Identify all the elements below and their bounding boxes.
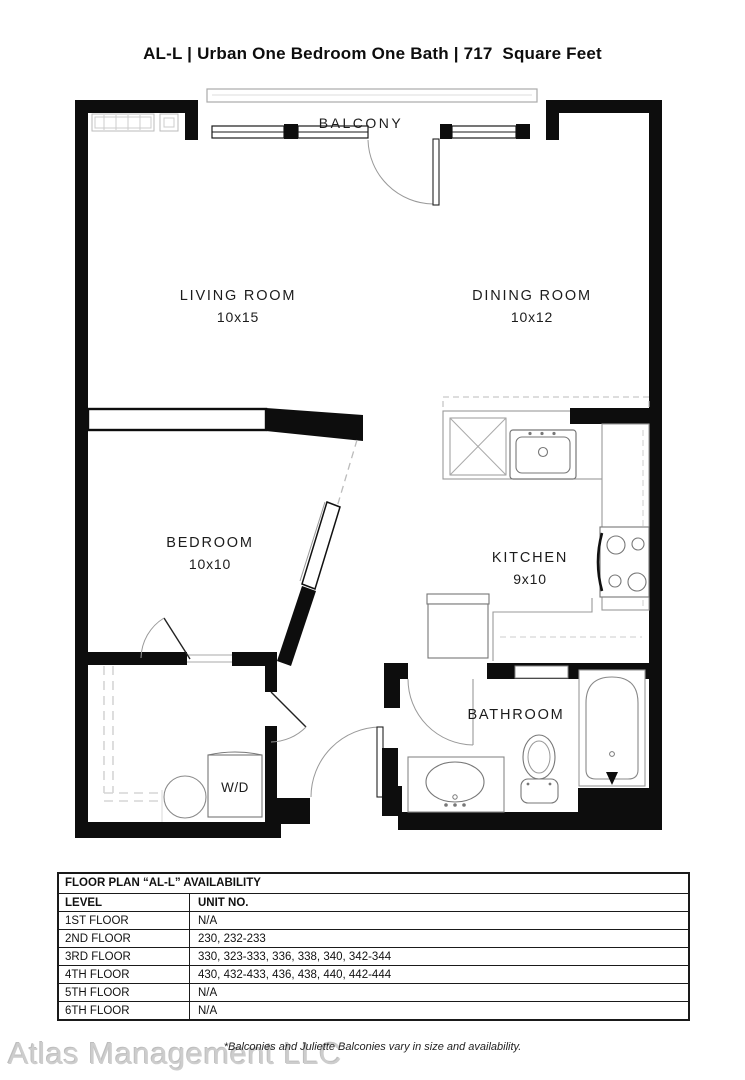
page: AL-L | Urban One Bedroom One Bath | 717 … <box>0 0 745 1080</box>
stove <box>598 527 649 597</box>
availability-table: FLOOR PLAN “AL-L” AVAILABILITY LEVEL UNI… <box>57 872 690 1021</box>
room-label-bedroom: BEDROOM <box>166 535 254 551</box>
wall-bathroom-left <box>382 748 398 816</box>
level-cell: 5TH FLOOR <box>59 984 190 1001</box>
room-dims-kitchen: 9x10 <box>513 571 547 587</box>
closet-wall <box>265 726 277 802</box>
availability-row: 1ST FLOOR N/A <box>59 911 688 929</box>
level-cell: 2ND FLOOR <box>59 930 190 947</box>
window-post <box>516 124 530 139</box>
window-post <box>440 124 452 139</box>
level-cell: 4TH FLOOR <box>59 966 190 983</box>
closet-wall-step <box>265 798 310 824</box>
wall-right <box>649 100 662 790</box>
room-label-kitchen: KITCHEN <box>492 550 568 566</box>
wall-left <box>75 100 88 838</box>
units-cell: 230, 232-233 <box>190 930 688 947</box>
balcony-deck <box>207 89 537 102</box>
room-label-wd: W/D <box>221 780 249 795</box>
kitchen-corner-cabinet <box>450 418 506 475</box>
footer-note: *Balconies and Juliette Balconies vary i… <box>0 1041 745 1053</box>
kitchen-sink <box>510 430 576 479</box>
units-cell: N/A <box>190 984 688 1001</box>
room-dims-bedroom: 10x10 <box>189 556 231 572</box>
refrigerator <box>427 594 489 658</box>
bathroom-door <box>408 679 473 745</box>
interior-wall-wedge <box>266 408 363 441</box>
room-label-dining: DINING ROOM <box>472 288 592 304</box>
availability-header-row: LEVEL UNIT NO. <box>59 893 688 911</box>
room-label-balcony: BALCONY <box>319 115 403 131</box>
availability-row: 5TH FLOOR N/A <box>59 983 688 1001</box>
bathroom-vanity <box>408 757 504 812</box>
bathroom-shelf <box>515 666 568 678</box>
toilet <box>521 735 558 803</box>
wall-step <box>185 100 198 140</box>
availability-row: 2ND FLOOR 230, 232-233 <box>59 929 688 947</box>
units-cell: N/A <box>190 1002 688 1019</box>
bedroom-wall <box>265 652 277 692</box>
baseboard-heater <box>92 114 178 131</box>
room-label-living: LIVING ROOM <box>180 288 296 304</box>
wall-top-left <box>75 100 198 113</box>
bedroom-wall <box>88 652 187 665</box>
wall-bathroom-left <box>384 663 400 708</box>
level-cell: 6TH FLOOR <box>59 1002 190 1019</box>
bathtub <box>579 670 645 786</box>
window-post <box>284 124 298 139</box>
bedroom-sliding-door <box>300 440 357 589</box>
water-heater <box>164 776 206 818</box>
interior-wall <box>88 409 266 430</box>
room-dims-dining: 10x12 <box>511 309 553 325</box>
wall-bottom-left <box>75 822 281 838</box>
entry-door <box>311 727 383 797</box>
column-header-units: UNIT NO. <box>190 894 688 911</box>
wall-top-right <box>546 100 662 113</box>
availability-row: 3RD FLOOR 330, 323-333, 336, 338, 340, 3… <box>59 947 688 965</box>
window-living-left <box>212 126 284 138</box>
balcony-door <box>368 139 439 205</box>
availability-table-title: FLOOR PLAN “AL-L” AVAILABILITY <box>59 874 688 893</box>
level-cell: 3RD FLOOR <box>59 948 190 965</box>
units-cell: 330, 323-333, 336, 338, 340, 342-344 <box>190 948 688 965</box>
availability-row: 4TH FLOOR 430, 432-433, 436, 438, 440, 4… <box>59 965 688 983</box>
wall-bath-bottom <box>398 812 582 830</box>
units-cell: N/A <box>190 912 688 929</box>
column-header-level: LEVEL <box>59 894 190 911</box>
wall-corner-br <box>578 788 662 830</box>
closet-rod-dashed <box>104 666 162 824</box>
window-dining <box>452 126 516 138</box>
availability-row: 6TH FLOOR N/A <box>59 1001 688 1019</box>
units-cell: 430, 432-433, 436, 438, 440, 442-444 <box>190 966 688 983</box>
room-dims-living: 10x15 <box>217 309 259 325</box>
level-cell: 1ST FLOOR <box>59 912 190 929</box>
wall-dining-kitchen <box>570 408 662 424</box>
room-label-bathroom: BATHROOM <box>467 707 564 723</box>
angled-wall <box>277 586 316 666</box>
